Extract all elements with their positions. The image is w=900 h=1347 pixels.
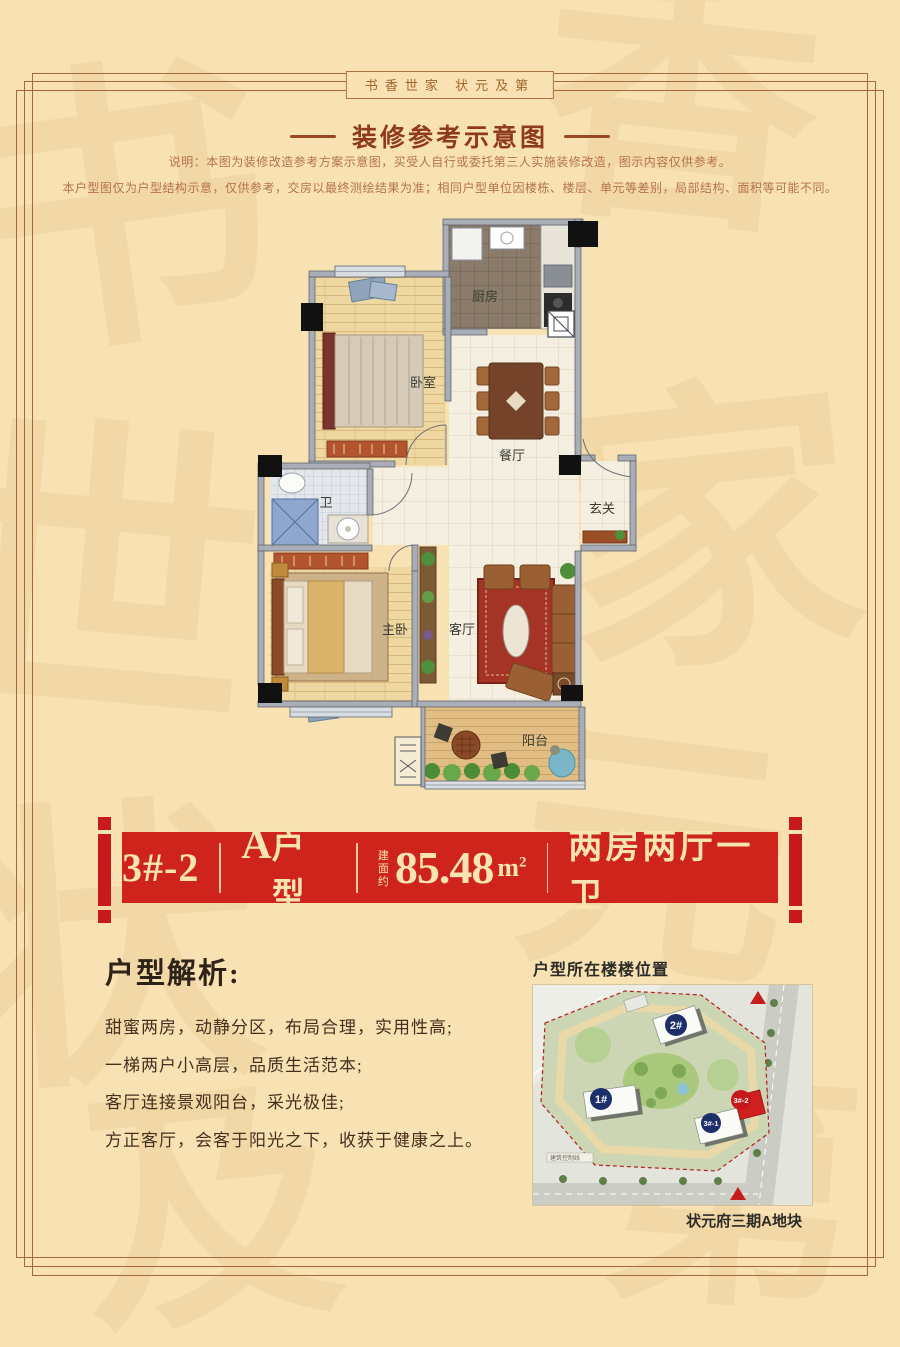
plant-cabinet: [420, 547, 436, 683]
disclaimer-line-1: 说明：本图为装修改造参考方案示意图，买受人自行或委托第三人实施装修改造，图示内容…: [0, 153, 900, 170]
unit-number: 3#-2: [122, 844, 199, 891]
page-title: 装修参考示意图: [352, 118, 548, 154]
flue-symbol: [548, 311, 574, 337]
area-unit-sup: 2: [519, 854, 527, 870]
analysis-line: 一梯两户小高层，品质生活范本;: [105, 1051, 363, 1076]
poster: 书 香 世 家 状 元 及 第 书香世家 状元及第 装修参考示意图 说明：本图为…: [0, 0, 900, 1347]
entry-console: [583, 530, 627, 543]
room-label-dining: 餐厅: [499, 448, 525, 463]
analysis-line: 甜蜜两房，动静分区，布局合理，实用性高;: [105, 1013, 453, 1038]
room-label-kitchen: 厨房: [472, 289, 498, 304]
room-label-bedroom: 卧室: [410, 375, 436, 390]
disclaimer-line-2: 本户型图仅为户型结构示意，仅供参考，交房以最终测绘结果为准；相同户型单位因楼栋、…: [0, 179, 900, 196]
title-dash-right: [564, 135, 610, 138]
room-label-living: 客厅: [449, 622, 475, 637]
area-prefix: 建面约: [378, 850, 392, 889]
dining-furniture: [477, 363, 559, 439]
badge-2-label: 2#: [670, 1020, 682, 1032]
unit-type: A户型: [241, 820, 336, 916]
badge-3-2-label: 3#-2: [733, 1096, 748, 1105]
motto-text: 书香世家 状元及第: [365, 78, 535, 93]
ac-box-symbol: [395, 737, 421, 785]
banner-main: 3#-2 A户型 建面约 85.48 m2 两房两厅一卫: [122, 832, 778, 903]
room-label-bath: 卫: [319, 495, 332, 510]
unit-area: 建面约 85.48 m2: [378, 841, 527, 894]
banner-divider: [547, 843, 549, 893]
motto-box: 书香世家 状元及第: [346, 71, 554, 99]
title-row: 装修参考示意图: [0, 118, 900, 154]
map-note: 建筑控制线: [550, 1154, 580, 1162]
unit-banner: 3#-2 A户型 建面约 85.48 m2 两房两厅一卫: [98, 817, 802, 923]
banner-endcap: [789, 817, 802, 830]
site-map: 1# 2# 3#-1 3#-2 建筑控制线: [533, 985, 812, 1205]
floor-plan: 厨房 卧室 餐厅 卫 玄关 主卧 客厅 阳台: [250, 215, 650, 805]
badge-3-1-label: 3#-1: [703, 1119, 718, 1128]
map-note-group: 建筑控制线: [547, 1153, 593, 1162]
banner-endcap: [789, 834, 802, 906]
title-dash-left: [290, 135, 336, 138]
analysis-line: 客厅连接景观阳台，采光极佳;: [105, 1088, 345, 1113]
unit-type-suffix: 户型: [272, 820, 336, 916]
banner-endcap: [98, 910, 111, 923]
master-furniture: [272, 553, 388, 691]
layout-label: 两房两厅一卫: [568, 819, 778, 917]
banner-endcap: [98, 834, 111, 906]
analysis-line: 方正客厅，会客于阳光之下，收获于健康之上。: [105, 1126, 483, 1151]
site-map-caption: 状元府三期A地块: [533, 1210, 812, 1231]
area-value: 85.48: [395, 841, 494, 894]
room-label-entry: 玄关: [589, 501, 615, 516]
site-map-title: 户型所在楼楼位置: [533, 956, 669, 980]
banner-divider: [356, 843, 358, 893]
area-unit-letter: m: [497, 853, 519, 882]
room-label-balcony: 阳台: [522, 733, 548, 748]
banner-endcap: [98, 817, 111, 830]
unit-type-letter: A: [241, 821, 271, 869]
banner-divider: [219, 843, 221, 893]
room-label-master: 主卧: [382, 622, 408, 637]
area-unit: m2: [497, 853, 526, 883]
analysis-heading: 户型解析:: [105, 950, 241, 992]
badge-1-label: 1#: [595, 1094, 607, 1106]
banner-endcap: [789, 910, 802, 923]
